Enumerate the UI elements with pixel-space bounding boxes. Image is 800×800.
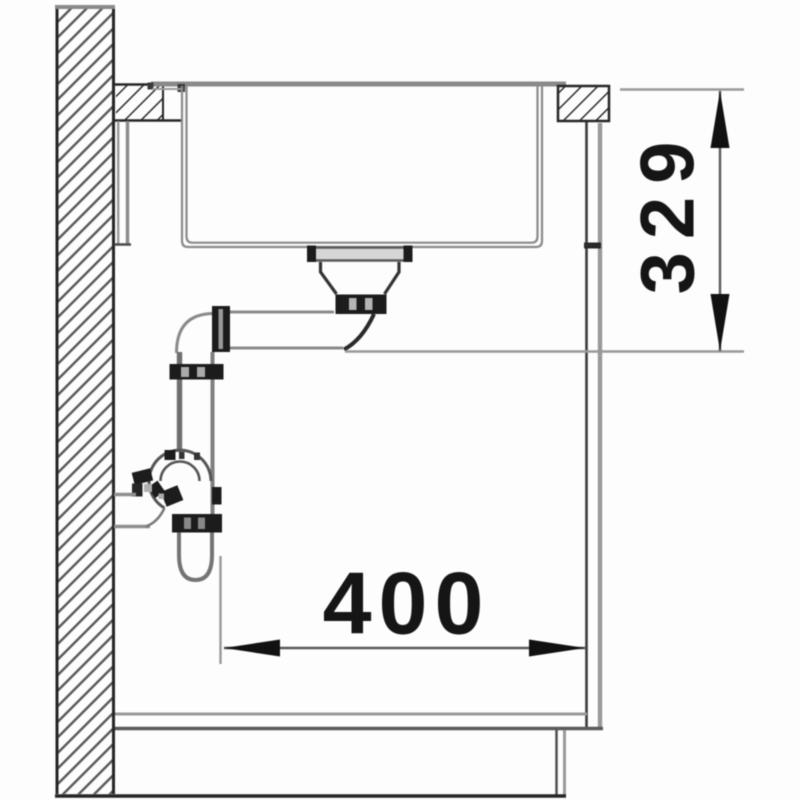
svg-text:400: 400 — [323, 554, 491, 653]
svg-text:329: 329 — [626, 129, 711, 295]
